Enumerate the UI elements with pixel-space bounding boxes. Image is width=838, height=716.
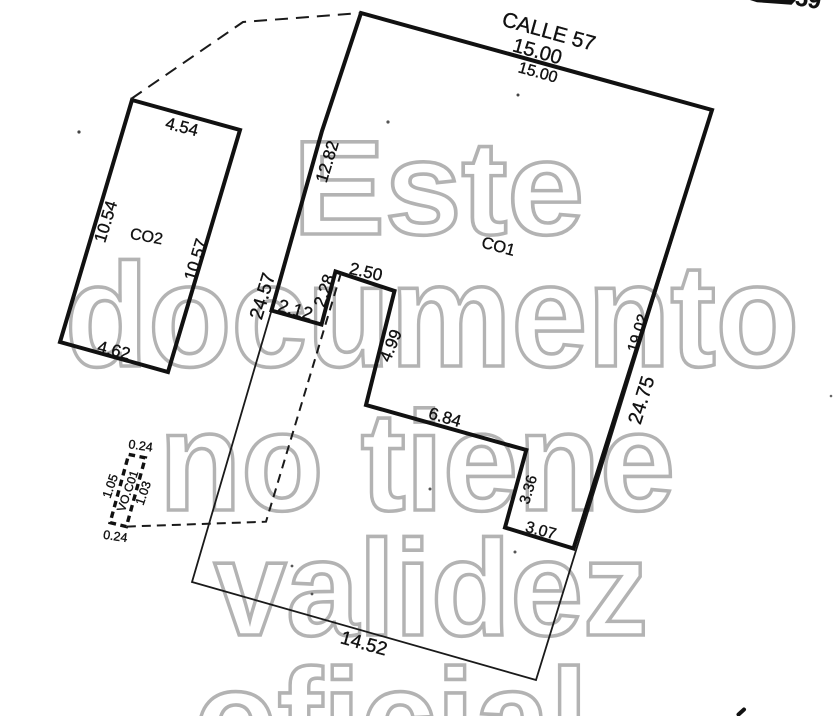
svg-text:documento: documento xyxy=(65,234,799,398)
